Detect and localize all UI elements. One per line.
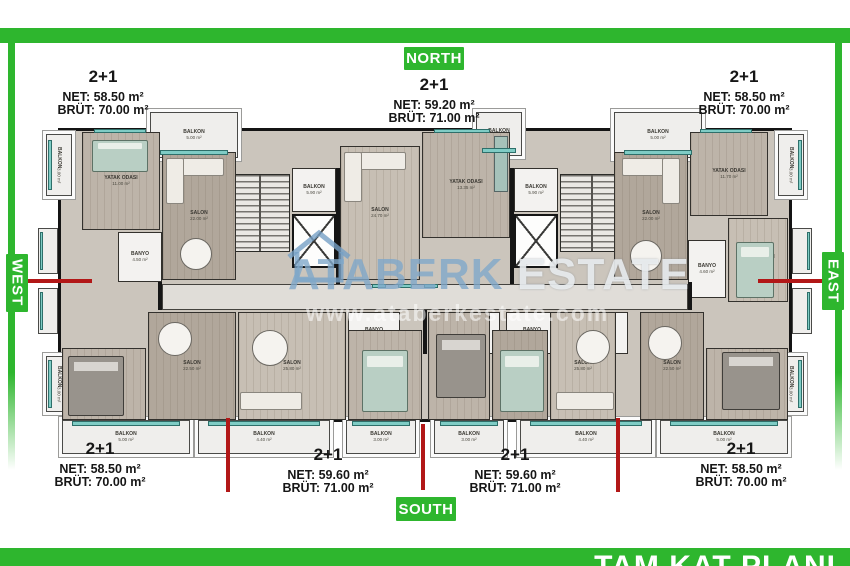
staircase-left: [228, 174, 290, 252]
unit-brut: BRÜT: 70.00 m²: [28, 104, 178, 117]
window-glass: [94, 129, 146, 133]
window-glass: [624, 150, 692, 155]
unit-type: 2+1: [253, 446, 403, 464]
unit-brut: BRÜT: 70.00 m²: [666, 476, 816, 489]
badge-north: NORTH: [404, 47, 464, 70]
unit-type: 2+1: [666, 440, 816, 458]
staircase-right: [560, 174, 622, 252]
wall-center: [423, 310, 427, 354]
unit-label-top-center: 2+1 NET: 59.20 m² BRÜT: 71.00 m²: [359, 76, 509, 125]
unit-type: 2+1: [359, 76, 509, 94]
badge-west: WEST: [6, 254, 28, 312]
bed: [68, 356, 124, 416]
room-nw-banyo: BANYO4.50 m²: [118, 232, 162, 282]
wardrobe: [494, 136, 508, 192]
window-glass: [798, 360, 802, 408]
dining-table: [158, 322, 192, 356]
unit-net: NET: 58.50 m²: [25, 463, 175, 476]
frame-top: [0, 28, 850, 43]
window-glass: [434, 129, 490, 133]
badge-south: SOUTH: [396, 497, 456, 521]
frame-right: [835, 28, 842, 470]
unit-net: NET: 59.60 m²: [440, 469, 590, 482]
section-line-south-1: [226, 418, 230, 492]
window-glass: [48, 140, 52, 190]
bed: [500, 350, 544, 412]
window-glass: [40, 232, 43, 270]
unit-type: 2+1: [669, 68, 819, 86]
window-glass: [40, 292, 43, 330]
window-glass: [48, 360, 52, 408]
wall-core-right: [510, 168, 514, 284]
elevator-right: [514, 214, 558, 268]
dining-table: [648, 326, 682, 360]
window-glass: [352, 421, 410, 426]
window-glass: [798, 140, 802, 190]
unit-brut: BRÜT: 71.00 m²: [440, 482, 590, 495]
sofa: [166, 158, 184, 204]
bed: [92, 140, 148, 172]
unit-brut: BRÜT: 70.00 m²: [25, 476, 175, 489]
unit-type: 2+1: [25, 440, 175, 458]
room-ne-banyo: BANYO4.60 m²: [688, 240, 726, 298]
badge-east: EAST: [822, 252, 844, 310]
unit-label-bottom-right: 2+1 NET: 58.50 m² BRÜT: 70.00 m²: [666, 440, 816, 489]
bed: [362, 350, 408, 412]
unit-type: 2+1: [28, 68, 178, 86]
wall-corridor-right: [688, 282, 692, 310]
window-glass: [208, 421, 320, 426]
footer-title: TAM KAT PLANI: [594, 550, 836, 566]
room-ne-bedroom1: YATAK ODASI11.70 m²: [690, 132, 768, 216]
unit-brut: BRÜT: 71.00 m²: [359, 112, 509, 125]
unit-label-bottom-left: 2+1 NET: 58.50 m² BRÜT: 70.00 m²: [25, 440, 175, 489]
unit-label-top-right: 2+1 NET: 58.50 m² BRÜT: 70.00 m²: [669, 68, 819, 117]
unit-net: NET: 58.50 m²: [669, 91, 819, 104]
section-line-south-2: [421, 424, 425, 490]
room-core-balcony-right: BALKON5.90 m²: [514, 168, 558, 212]
dining-table: [180, 238, 212, 270]
bed: [736, 242, 774, 298]
window-glass: [700, 129, 752, 133]
unit-brut: BRÜT: 71.00 m²: [253, 482, 403, 495]
wall-core-left: [336, 168, 340, 284]
dining-table: [252, 330, 288, 366]
window-glass: [72, 421, 180, 426]
window-glass: [160, 150, 228, 155]
room-core-balcony-left: BALKON5.90 m²: [292, 168, 336, 212]
window-glass: [372, 284, 386, 288]
unit-label-bottom-center-right: 2+1 NET: 59.60 m² BRÜT: 71.00 m²: [440, 446, 590, 495]
dining-table: [576, 330, 610, 364]
floor-plan-page: TAM KAT PLANI BALKON5.00 m² BALKON2.90 m…: [0, 0, 850, 566]
section-line-west: [28, 279, 92, 283]
wall-corridor-left: [158, 282, 162, 310]
window-glass: [807, 292, 810, 330]
unit-net: NET: 59.60 m²: [253, 469, 403, 482]
window-glass: [670, 421, 778, 426]
unit-net: NET: 59.20 m²: [359, 99, 509, 112]
sofa: [240, 392, 302, 410]
unit-net: NET: 58.50 m²: [28, 91, 178, 104]
window-glass: [424, 284, 438, 288]
window-glass: [530, 421, 642, 426]
window-glass: [398, 284, 412, 288]
section-line-east: [758, 279, 822, 283]
unit-label-top-left: 2+1 NET: 58.50 m² BRÜT: 70.00 m²: [28, 68, 178, 117]
window-glass: [807, 232, 810, 270]
section-line-south-3: [616, 418, 620, 492]
bed: [436, 334, 486, 398]
unit-net: NET: 58.50 m²: [666, 463, 816, 476]
dining-table: [630, 240, 662, 272]
frame-left: [8, 28, 15, 470]
sofa: [344, 152, 362, 202]
sofa: [662, 158, 680, 204]
window-glass: [440, 421, 498, 426]
window-glass: [482, 148, 516, 153]
unit-label-bottom-center-left: 2+1 NET: 59.60 m² BRÜT: 71.00 m²: [253, 446, 403, 495]
elevator-left: [292, 214, 336, 268]
sofa: [556, 392, 614, 410]
bed: [722, 352, 780, 410]
unit-type: 2+1: [440, 446, 590, 464]
unit-brut: BRÜT: 70.00 m²: [669, 104, 819, 117]
